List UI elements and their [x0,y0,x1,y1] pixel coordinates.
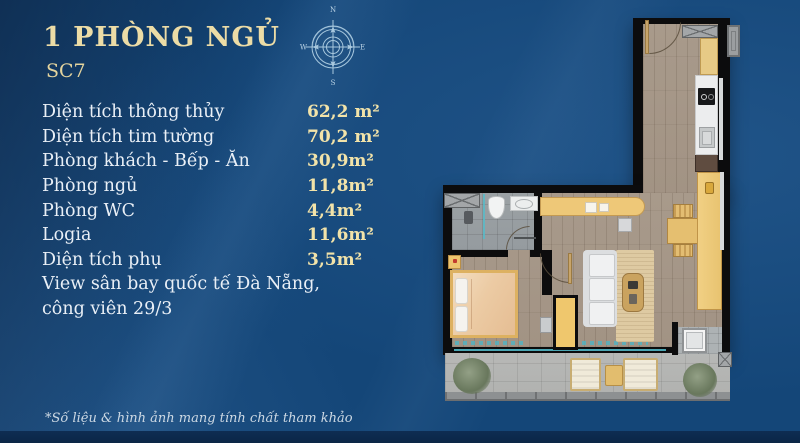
entry-cabinet [682,25,718,38]
spec-value: 4,4m² [307,201,362,221]
spec-label: Phòng WC [42,201,307,221]
shower-glass [483,194,485,239]
bottom-bar [0,431,800,443]
spec-value: 62,2 m² [307,102,380,122]
bathroom-cabinet [444,193,480,208]
kitchen-island [540,197,645,216]
living-plant [580,323,603,346]
spec-row: Phòng khách - Bếp - Ăn 30,9m² [42,149,398,174]
spec-label: Diện tích tim tường [42,127,307,147]
island-side-table [618,218,632,232]
spec-row: Phòng ngủ 11,8m² [42,174,398,199]
hall-cabinet [540,317,552,333]
window-strip [720,172,724,250]
spec-label: Diện tích phụ [42,250,307,270]
fridge [695,154,718,172]
spec-row: Phòng WC 4,4m² [42,198,398,223]
view-note-line: công viên 29/3 [42,297,398,322]
spec-label: Logia [42,225,307,245]
compass-north-label: N [330,6,336,14]
spec-value: 3,5m² [307,250,362,270]
wall-utility-left [672,322,678,355]
ac-unit-top [727,25,740,57]
spec-row: Diện tích phụ 3,5m² [42,248,398,273]
cooktop [698,88,715,105]
window-strip [719,78,723,160]
coffee-table [622,273,644,312]
spec-value: 11,8m² [307,176,374,196]
compass-west-label: W [300,44,308,52]
kitchen-sink [699,127,715,148]
bed [450,270,518,338]
spec-list: Diện tích thông thủy 62,2 m² Diện tích t… [42,100,398,321]
kitchen-plant [702,40,717,55]
pillow [455,306,468,332]
compass-east-label: E [360,44,365,52]
spec-label: Phòng ngủ [42,176,307,196]
view-note-line: View sân bay quốc tế Đà Nẵng, [42,272,398,297]
bathroom-sink [510,196,538,211]
towel-bar [514,237,536,239]
compass-icon: N S W E [299,3,367,87]
balcony-plant-left [453,358,491,394]
washing-machine [682,328,707,353]
hall-door-leaf [568,253,572,284]
spec-row: Logia 11,6m² [42,223,398,248]
page-title: 1 PHÒNG NGỦ [43,22,280,53]
dining-chair [673,244,693,257]
compass-south-label: S [331,79,336,87]
spec-row: Diện tích tim tường 70,2 m² [42,125,398,150]
nightstand [448,255,461,269]
bar-counter [697,172,722,310]
spec-row: Diện tích thông thủy 62,2 m² [42,100,398,125]
window-sill-decor [455,341,527,345]
wardrobe [553,295,578,350]
spec-label: Diện tích thông thủy [42,102,307,122]
spec-value: 70,2 m² [307,127,380,147]
floorplan [430,8,800,408]
lounge-chair [570,358,601,391]
balcony-railing [445,392,730,401]
unit-code: SC7 [46,60,86,82]
spec-value: 11,6m² [307,225,374,245]
spec-value: 30,9m² [307,151,374,171]
spec-label: Phòng khách - Bếp - Ăn [42,151,307,171]
pillow [455,278,468,304]
balcony-side-table [605,365,623,386]
brochure-page: 1 PHÒNG NGỦ SC7 N S W E Diện tích thông [0,0,800,443]
disclaimer-text: *Số liệu & hình ảnh mang tính chất tham … [45,411,353,426]
shower-head [464,211,473,224]
balcony-plant-right [683,363,717,397]
ac-unit-bottom [718,352,732,367]
lounge-chair [623,358,658,391]
dining-table [667,218,698,244]
dining-chair [673,204,693,218]
sofa [583,250,617,327]
